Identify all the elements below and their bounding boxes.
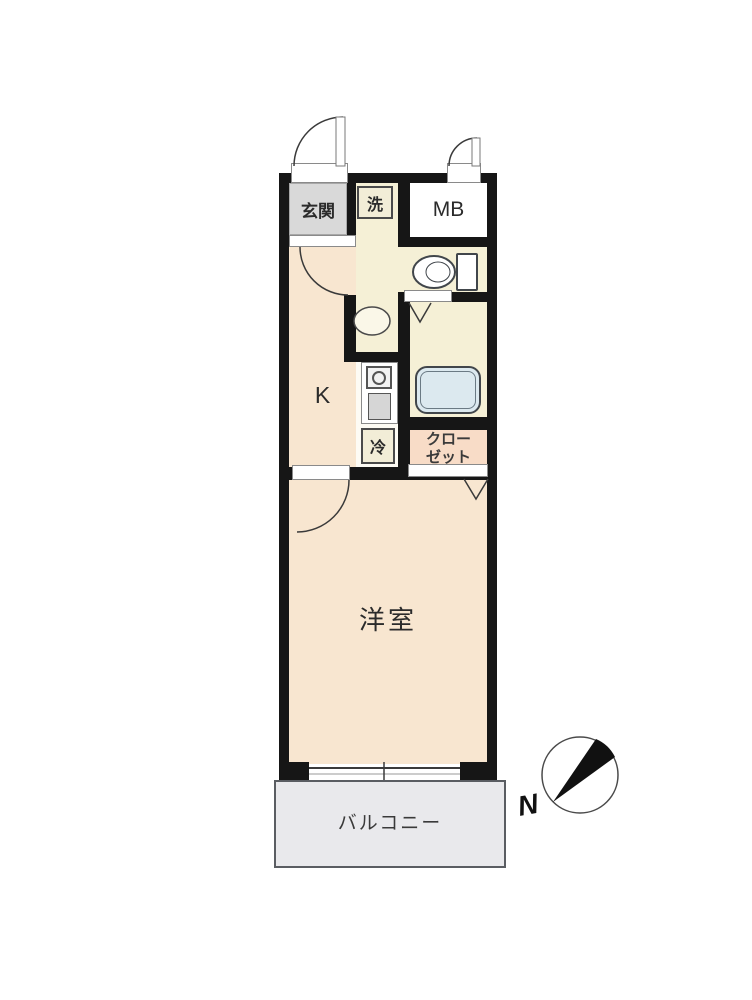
bathtub [415,366,481,414]
room-door-frame [292,465,350,480]
sliding-window [309,762,460,780]
wall-nook-left [344,295,356,352]
mb-door-frame [447,163,481,183]
balcony-label: バルコニー [300,805,480,837]
compass-north-label: N [515,785,556,825]
kitchen-sink [368,393,391,420]
closet-label-line1: クロー [426,431,471,448]
stove-burner-icon [372,371,386,385]
closet-label-line2: ゼット [426,449,471,466]
genkan-label: 玄関 [289,183,347,235]
mb-door [449,138,480,166]
floor-plan: 玄関 洗 MB K 冷 クロー ゼット 洋室 バルコニー N [0,0,752,1000]
laundry-label: 洗 [357,186,393,219]
closet-label: クロー ゼット [410,431,487,468]
bathtub-inner [420,371,476,409]
wall-corridor-mb [398,183,410,237]
bathroom-door-frame [404,290,452,302]
wall-bottom-right-stub [460,762,497,780]
refrigerator-label: 冷 [361,428,395,464]
wall-bath-bottom [398,417,497,430]
wall-genkan-corridor [347,173,356,243]
wall-bottom-left-stub [279,762,309,780]
wall-mb-bottom [398,237,497,247]
toilet-tank [456,253,478,291]
stove [366,366,392,389]
kitchen-label: K [295,375,350,415]
western-room-label: 洋室 [330,598,446,638]
wall-bath-left [398,292,410,430]
entrance-door [294,117,345,166]
entrance-door-frame [291,163,348,183]
wall-nook-bottom [344,352,398,362]
mb-label: MB [410,183,487,237]
compass-needle-icon [553,739,615,802]
kitchen-door-frame [289,235,356,247]
